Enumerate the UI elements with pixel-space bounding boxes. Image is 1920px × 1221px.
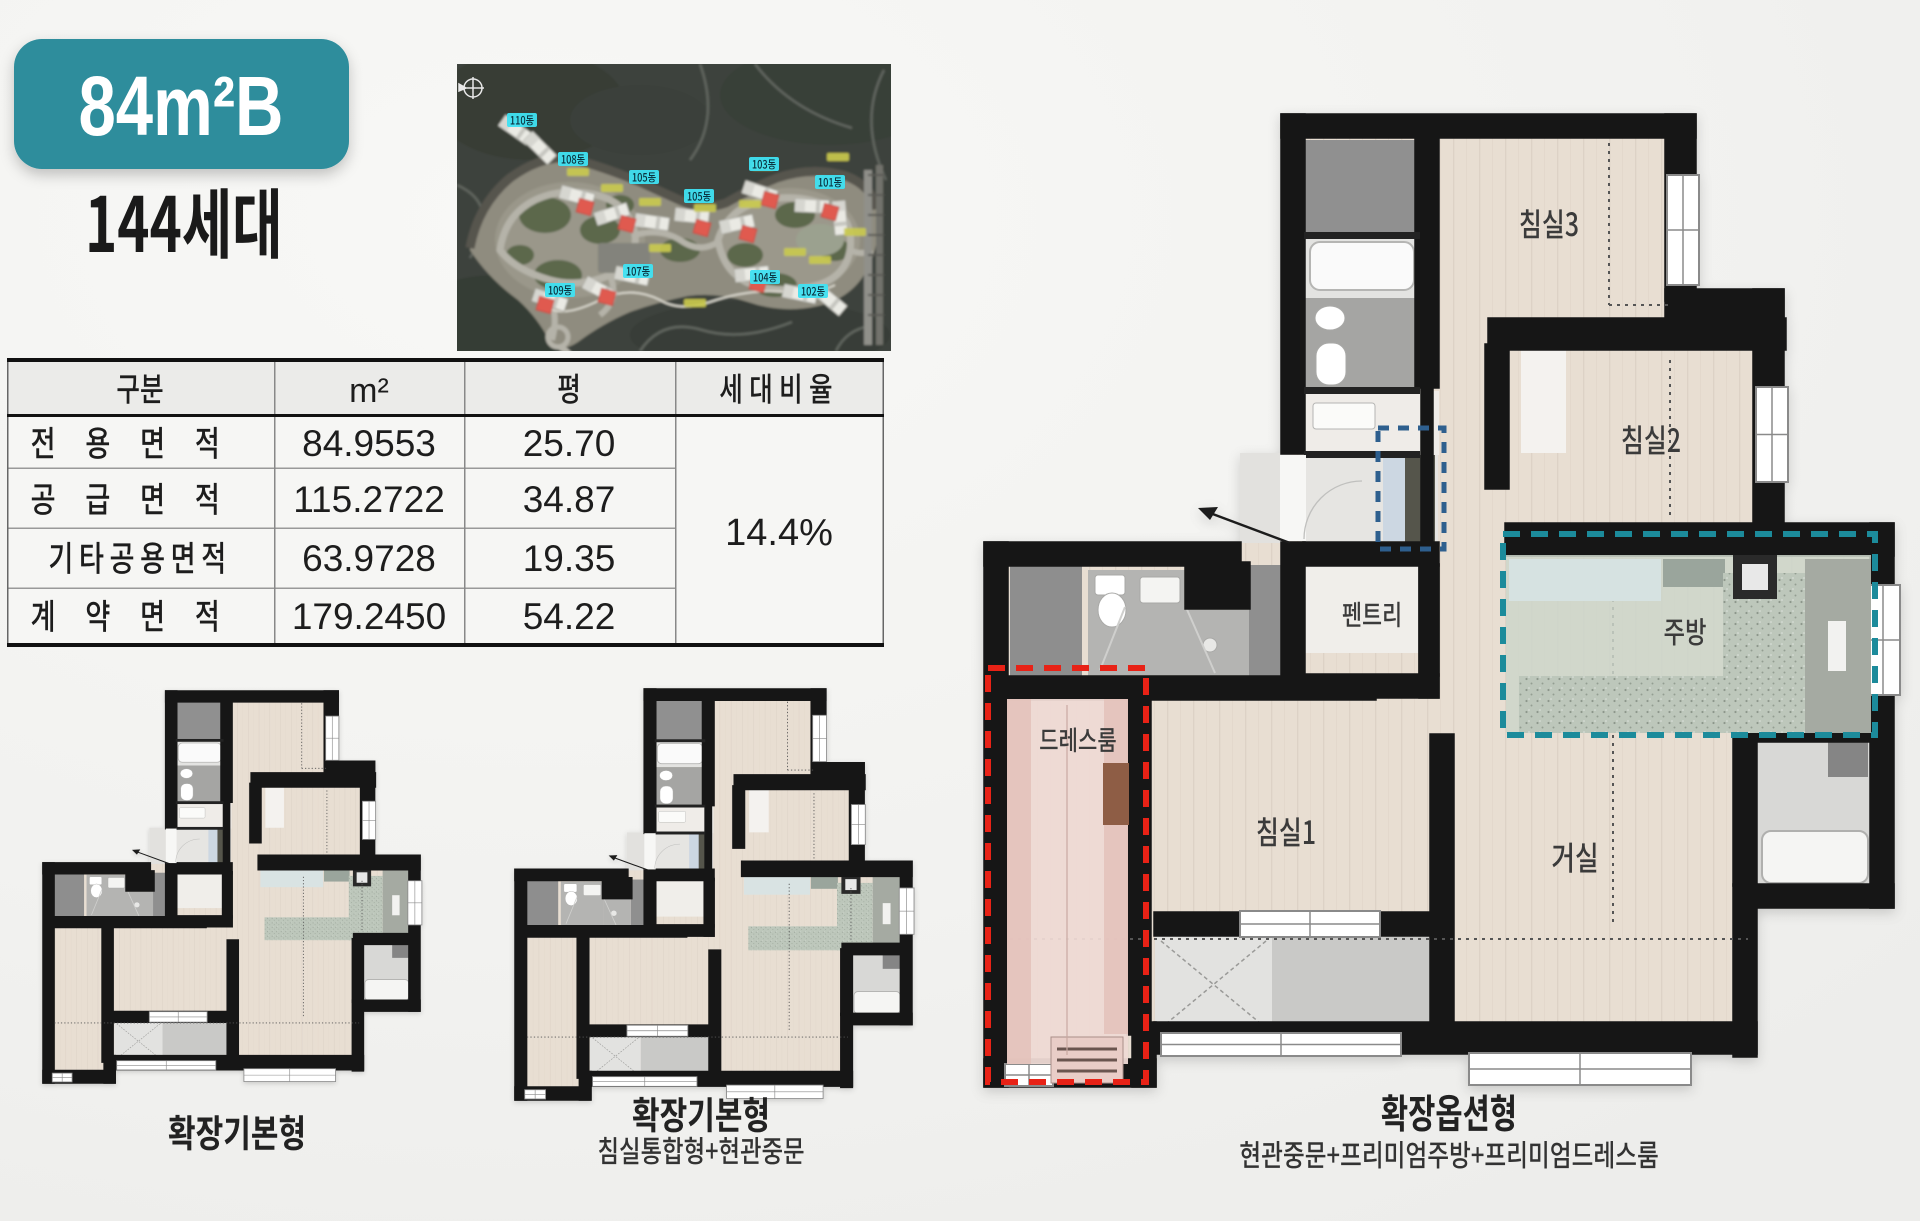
svg-text:84.9553: 84.9553	[302, 423, 436, 464]
svg-text:m²: m²	[349, 372, 389, 410]
svg-text:25.70: 25.70	[523, 423, 616, 464]
svg-text:19.35: 19.35	[523, 538, 616, 579]
svg-text:34.87: 34.87	[523, 479, 616, 520]
svg-text:179.2450: 179.2450	[292, 596, 446, 637]
svg-text:84m²B: 84m²B	[79, 59, 284, 153]
svg-text:115.2722: 115.2722	[293, 479, 445, 520]
svg-text:63.9728: 63.9728	[302, 538, 436, 579]
svg-text:14.4%: 14.4%	[725, 512, 833, 554]
svg-text:54.22: 54.22	[523, 596, 616, 637]
